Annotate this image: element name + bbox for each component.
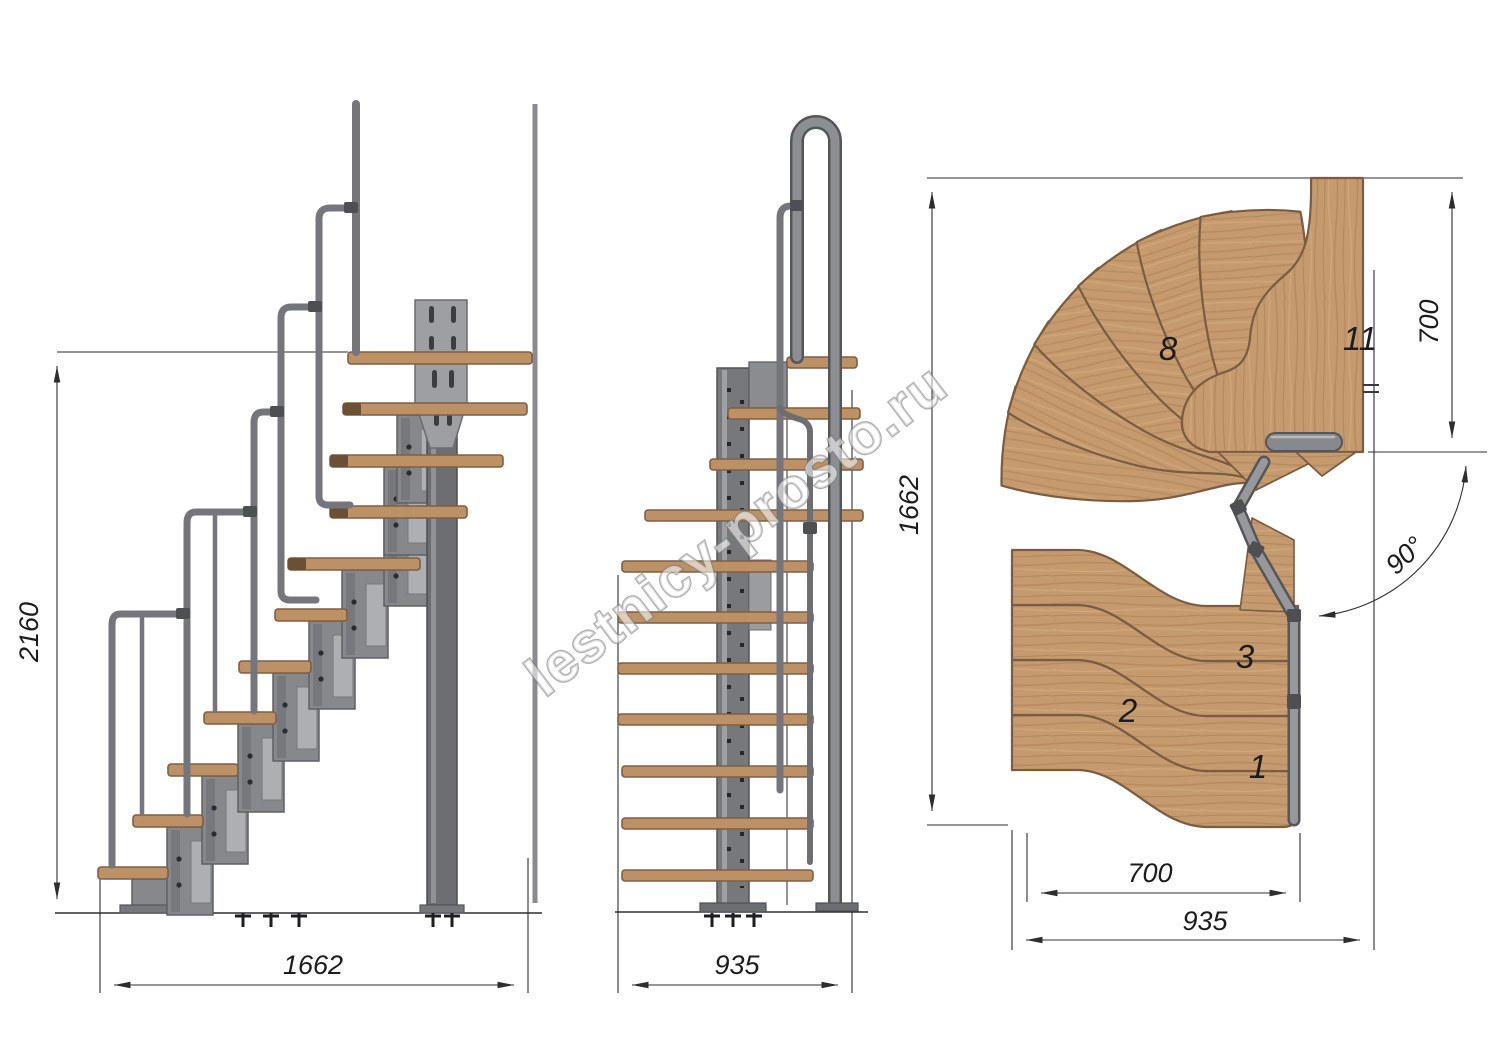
side-elevation-view: 2160 1662	[14, 104, 542, 993]
dimension-plan-landing-depth: 700	[1414, 299, 1444, 344]
tread-label-1: 1	[1249, 748, 1267, 785]
tread-label-8: 8	[1159, 330, 1178, 367]
dimension-front-width: 935	[714, 950, 760, 980]
tread-label-11: 11	[1343, 320, 1377, 357]
turn-angle-arc	[1319, 466, 1466, 616]
dimension-plan-total-width: 935	[1182, 906, 1228, 936]
dimension-side-length: 1662	[283, 950, 343, 980]
front-central-column	[700, 362, 787, 927]
tread-label-3: 3	[1236, 638, 1255, 675]
technical-drawing-page: 2160 1662	[0, 0, 1500, 1061]
staircase-drawing: 2160 1662	[0, 0, 1500, 1061]
tread-label-2: 2	[1118, 692, 1137, 729]
plan-wall-bracket	[1363, 385, 1379, 392]
top-mounting-plate	[415, 300, 467, 448]
side-central-column	[415, 300, 467, 927]
landing-grab-bar	[1266, 433, 1342, 451]
plan-view: 1662 700 90° 700 935 1 2 3 8 11	[894, 178, 1487, 950]
dimension-plan-flight-width: 700	[1127, 858, 1172, 888]
dimension-plan-height: 1662	[894, 475, 924, 535]
dimension-plan-turn-angle: 90°	[1380, 530, 1430, 580]
dimension-side-height: 2160	[14, 602, 44, 663]
